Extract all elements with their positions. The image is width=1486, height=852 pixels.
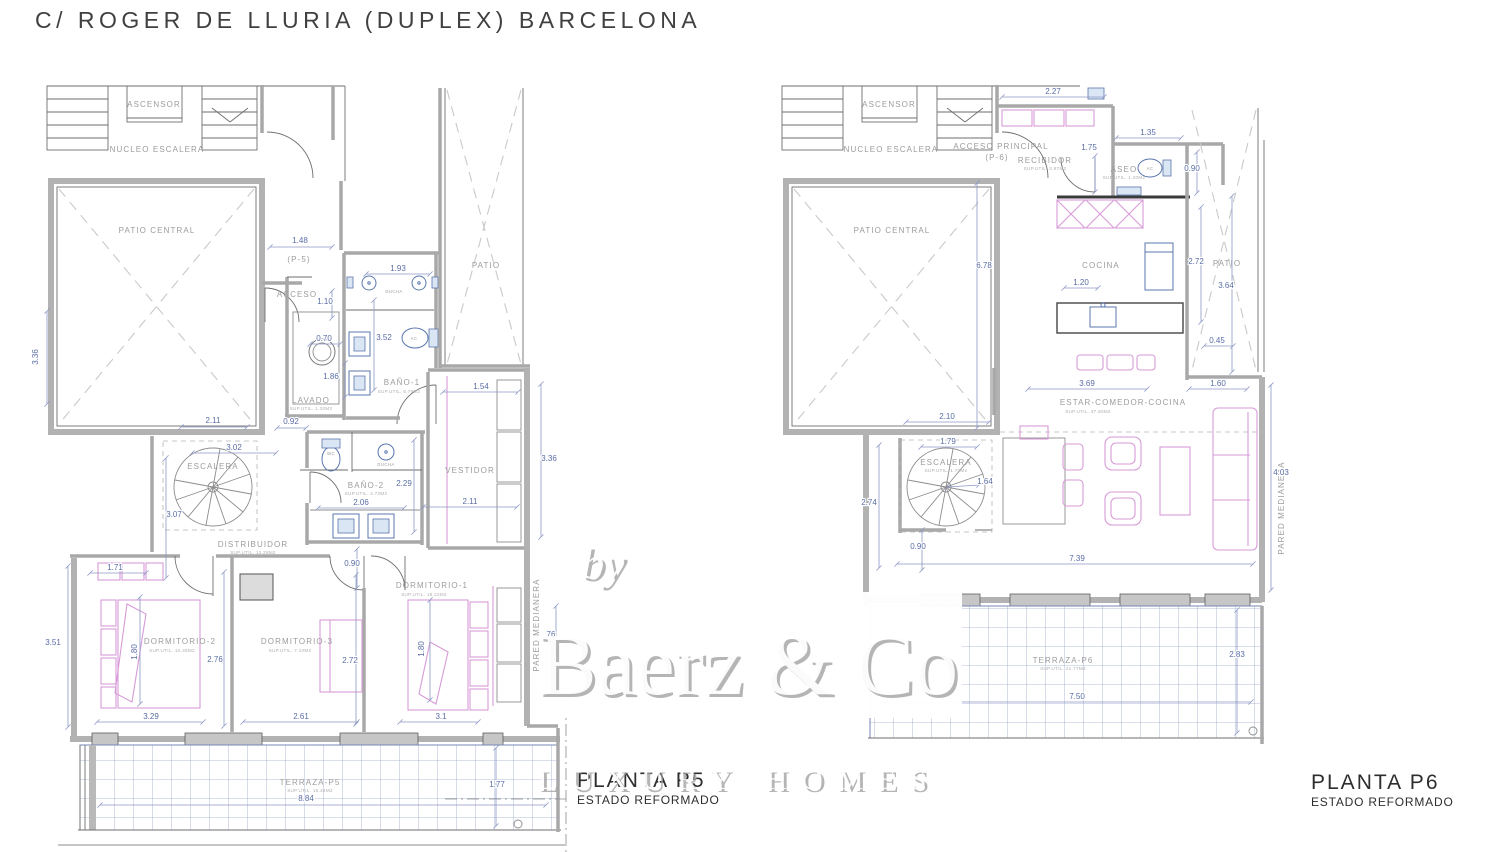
cabinet [240,574,273,600]
dimension-label: 2.61 [293,712,309,721]
dimension-label: 1.54 [473,382,489,391]
window-sill [1010,594,1090,606]
dimension-line [948,485,979,487]
dimension-label: 2.11 [463,497,479,506]
dimension-label: 3.07 [166,510,182,519]
dimension-label: 1.80 [417,641,426,657]
watermark-tagline: LUXURY HOMES [538,763,941,796]
fixture-label: AC [411,336,418,341]
dimension-label: 2.74 [861,498,877,507]
dimension-label: 1.20 [1073,278,1089,287]
room-label: VESTIDOR [445,466,495,475]
room-label: PATIO CENTRAL [119,226,196,235]
room-label: PATIO [1213,259,1241,268]
shower-head [412,276,426,290]
watermark: by by Baerz & Co Baerz & Co LUXURY HOMES… [538,537,962,799]
coffee-table [1160,447,1190,515]
fridge [1145,243,1173,290]
dimension-label: 1.48 [292,236,308,245]
dimension-label: 7.50 [1069,692,1085,701]
room-label: ACCESO [277,290,317,299]
p6-fixture-labels: AC [1147,166,1154,171]
room-label: NUCLEO ESCALERA [110,145,205,154]
dimension-label: 2.83 [1229,650,1245,659]
sink [1090,307,1116,327]
room-label: ESCALERA [920,458,971,467]
dimension-label: 1.71 [107,563,123,572]
room-label: COCINA [1082,261,1120,270]
dimension-label: 2.27 [1045,87,1061,96]
fixture-label: DUCHA [385,289,402,294]
floorplan-page: C/ ROGER DE LLURIA (DUPLEX) BARCELONA [0,0,1486,852]
dimension-label: 2.72 [1188,257,1204,266]
window-sill [185,733,262,745]
plan-p5: ASCENSORNUCLEO ESCALERAPATIO CENTRAL(P-5… [31,85,566,852]
room-label: DORMITORIO-2 [144,637,216,646]
fixture-label: WC [327,451,335,456]
room-area-label: SUP.UTIL. 21.77M2 [1040,666,1086,671]
room-area-label: SUP.UTIL. 1.70M2 [925,468,968,473]
dimension-label: 1.79 [940,437,956,446]
dimension-label: 3.02 [226,443,242,452]
room-label: ASCENSOR [862,100,916,109]
room-area-label: SUP.UTIL. 6.79M2 [378,389,421,394]
dimension-label: 0.90 [910,542,926,551]
fixture-label: DUCHA [377,462,394,467]
drawing-title: C/ ROGER DE LLURIA (DUPLEX) BARCELONA [35,7,701,33]
dimension-label: 3.69 [1079,379,1095,388]
room-label: RECIBIDOR [1018,156,1072,165]
room-area-label: SUP.UTIL. 1.20M2 [1103,175,1146,180]
room-label: PATIO CENTRAL [854,226,931,235]
room-label: TERRAZA-P6 [1033,656,1094,665]
fixture-label: AC [1147,166,1154,171]
room-label: TERRAZA-P5 [280,778,341,787]
dimension-label: 1.35 [1140,128,1156,137]
stool [1077,355,1103,370]
dimension-label: 7.39 [1069,554,1085,563]
room-label: ASEO [1111,165,1138,174]
room-area-label: SUP.UTIL. 16.44M2 [287,788,333,793]
dimension-label: 1.86 [323,372,339,381]
stool [1137,355,1155,370]
dimension-label: 1.93 [390,264,406,273]
dimension-label: 0.90 [344,559,360,568]
room-label: ACCESO PRINCIPAL [953,142,1048,151]
dimension-label: 0.70 [316,334,332,343]
dimension-label: 4.03 [1273,468,1289,477]
dimension-label: 3.36 [541,454,557,463]
watermark-by: by [581,537,625,588]
room-label: PATIO [472,261,500,270]
dimension-label: 6.78 [976,261,992,270]
p6-titleblock: PLANTA P6 ESTADO REFORMADO [1311,771,1454,809]
armchair [1105,437,1141,470]
room-label: NUCLEO ESCALERA [844,145,939,154]
dimension-label: 1.77 [489,780,505,789]
dimension-label: 1.10 [317,297,333,306]
room-label: ESCALERA [187,462,238,471]
armchair [1105,492,1141,525]
dimension-label: 2.72 [342,656,358,665]
stool [1107,355,1133,370]
watermark-brand: Baerz & Co [538,617,958,714]
room-area-label: SUP.UTIL. 37.80M2 [1065,409,1111,414]
room-area-label: SUP.UTIL. 3.97M2 [1024,166,1067,171]
room-label: LAVADO [292,396,330,405]
p6-subtitle: ESTADO REFORMADO [1311,795,1454,809]
p6-title: PLANTA P6 [1311,771,1440,794]
dimension-label: 1.64 [977,477,993,486]
dimension-label: 3.36 [31,349,40,365]
window-sill [483,733,503,745]
dimension-label: 2.06 [353,498,369,507]
dining-table [1003,438,1065,524]
dimension-label: 1.75 [1081,143,1097,152]
dimension-label: 2.10 [939,412,955,421]
dimension-label: 3.64 [1218,281,1234,290]
room-label: BAÑO-1 [384,378,420,387]
sofa [1213,408,1257,550]
dimension-label: 3.51 [45,638,61,647]
window-sill [1205,594,1250,606]
floorplan-canvas: C/ ROGER DE LLURIA (DUPLEX) BARCELONA [0,0,1486,852]
chair [1063,480,1083,506]
room-area-label: SUP.UTIL. 7.10M2 [269,648,312,653]
dimension-label: 1.60 [1210,379,1226,388]
dimension-label: 2.11 [206,416,222,425]
dimension-label: 3.29 [143,712,159,721]
door-arc [267,132,313,178]
room-label: (P-5) [287,255,310,264]
room-label: DORMITORIO-3 [261,637,333,646]
dimension-label: 3.52 [376,333,392,342]
patio-central-walls [786,181,997,432]
room-label: ASCENSOR [127,100,181,109]
door-arc [310,472,341,503]
room-area-label: SUP.UTIL. 1.30M2 [290,406,333,411]
dimension-label: 3.1 [435,712,447,721]
room-area-label: SUP.UTIL. 10.35M2 [149,648,195,653]
dimension-label: 2.76 [207,655,223,664]
sink [1117,187,1141,195]
window-sill [340,733,418,745]
room-area-label: SUP.UTIL. 18.22M2 [401,592,447,597]
dimension-label: 8.84 [298,794,314,803]
room-label: BAÑO-2 [348,481,384,490]
room-label: (P-6) [985,153,1008,162]
window-sill [92,733,118,745]
dimension-label: 0.90 [1184,164,1200,173]
room-area-label: SUP.UTIL. 4.72M2 [345,491,388,496]
chair [1063,444,1083,470]
dimension-label: 0.45 [1209,336,1225,345]
door-arc [1002,132,1048,178]
shower-head [378,444,394,460]
room-label: ESTAR-COMEDOR-COCINA [1060,398,1186,407]
window-sill [1120,594,1190,606]
dimension-label: 0.92 [283,417,299,426]
room-area-label: SUP.UTIL. 12.28M2 [230,550,276,555]
shower-head [362,276,376,290]
room-label: DORMITORIO-1 [396,581,468,590]
kitchen-island [1057,303,1183,333]
dimension-label: 2.29 [396,479,412,488]
patio-central-walls [51,181,262,432]
door-arc [175,556,213,594]
dimension-label: 1.80 [130,644,139,660]
room-label: DISTRIBUIDOR [218,540,289,549]
